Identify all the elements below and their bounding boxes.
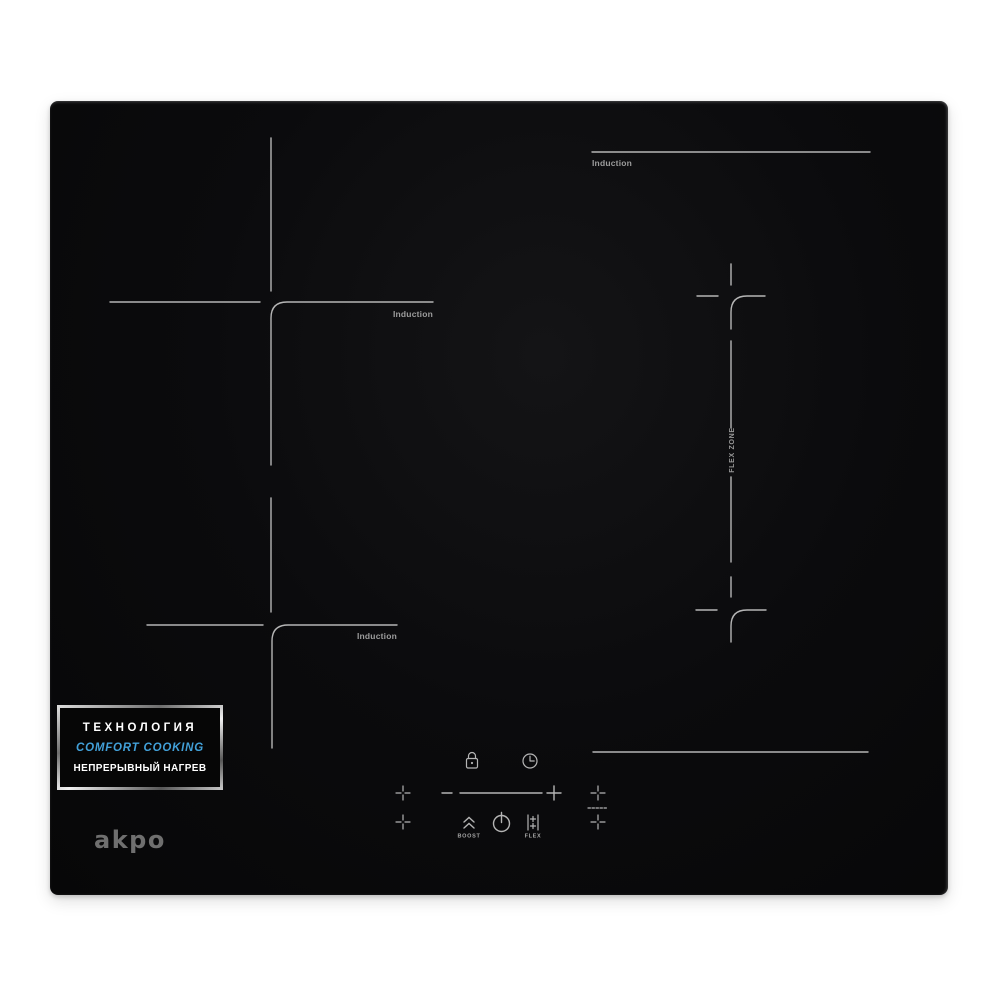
technology-badge: ТЕХНОЛОГИЯ COMFORT COOKING НЕПРЕРЫВНЫЙ Н… [57, 705, 223, 790]
zone-mid-left-marking: Induction [110, 138, 433, 612]
zone-select-plus-icon[interactable] [591, 786, 605, 800]
brand-logo: akpo [94, 828, 166, 852]
plus-icon[interactable] [547, 786, 561, 800]
flex-corner-outline [731, 610, 766, 642]
flex-bridge-icon[interactable] [528, 815, 538, 830]
zone-select-plus-icon[interactable] [396, 815, 410, 829]
zone-corner-outline [272, 625, 397, 748]
zone-label-induction: Induction [393, 309, 433, 319]
flex-control[interactable]: FLEX [525, 815, 542, 840]
flex-zone-label: FLEX ZONE [729, 427, 736, 473]
flex-corner-outline [731, 296, 765, 329]
badge-subtitle: COMFORT COOKING [76, 742, 204, 754]
lock-icon[interactable] [467, 753, 478, 768]
control-panel: BOOST FLEX [396, 753, 607, 840]
boost-label: BOOST [457, 834, 480, 840]
badge-title: ТЕХНОЛОГИЯ [83, 722, 197, 734]
zone-corner-outline [271, 302, 433, 465]
zone-select-plus-icon[interactable] [396, 786, 410, 800]
timer-clock-icon[interactable] [523, 754, 537, 768]
boost-chevrons-icon[interactable] [464, 818, 474, 829]
boost-control[interactable]: BOOST [457, 818, 480, 840]
zone-label-induction: Induction [357, 631, 397, 641]
zone-select-plus-icon[interactable] [591, 815, 605, 829]
cooktop-glass-surface: Induction Induction Induction FLEX ZONE [50, 101, 948, 895]
flex-label: FLEX [525, 834, 542, 840]
badge-caption: НЕПРЕРЫВНЫЙ НАГРЕВ [74, 763, 207, 774]
flex-zone-marking: Induction FLEX ZONE [592, 152, 870, 752]
zone-label-induction: Induction [592, 158, 632, 168]
power-icon[interactable] [494, 813, 510, 832]
